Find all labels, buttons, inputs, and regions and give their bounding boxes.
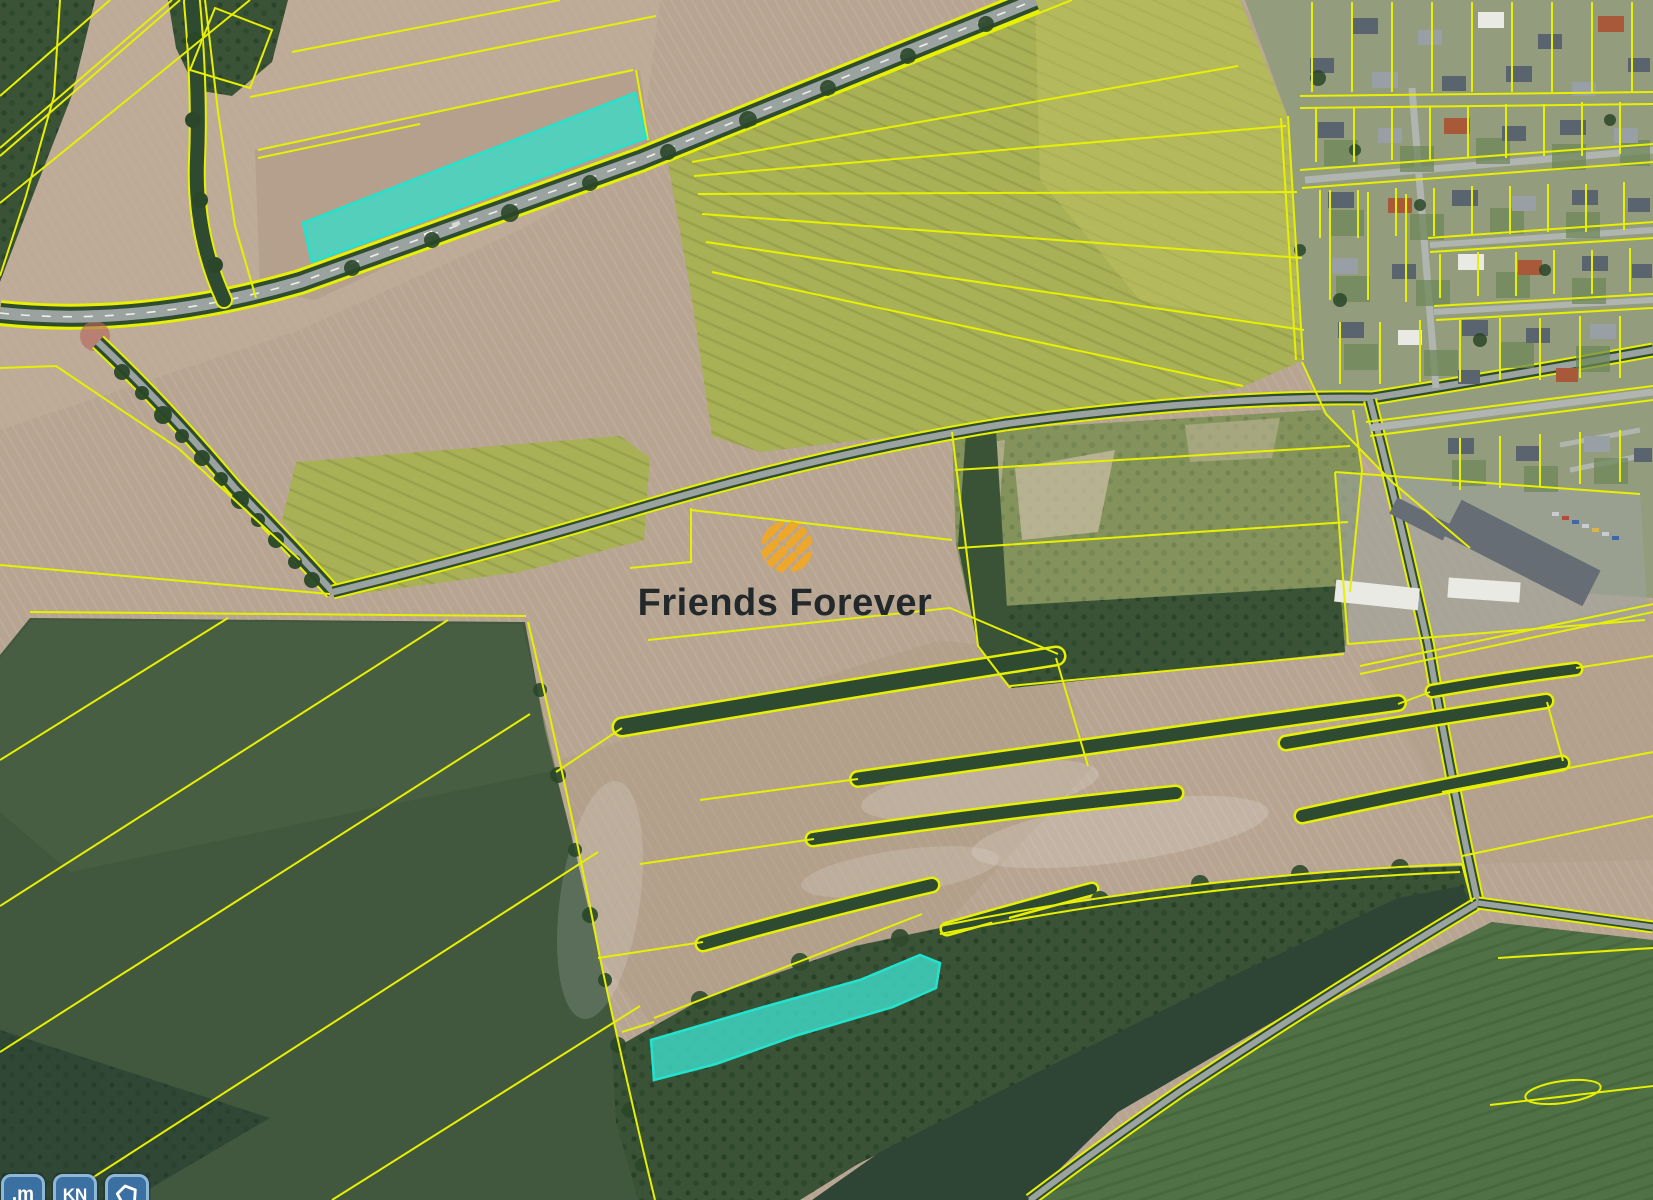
cadastre-kn-label: KN: [63, 1185, 88, 1200]
brand-wordmark: Friends Forever: [585, 582, 985, 625]
unit-meters-label: .m: [12, 1184, 34, 1200]
brand-logo-icon: [755, 515, 819, 579]
unit-meters-button[interactable]: .m: [1, 1174, 45, 1200]
pentagon-parcel-icon: [114, 1182, 140, 1200]
parcel-shape-button[interactable]: [105, 1174, 149, 1200]
map-viewport[interactable]: Friends Forever .m KN: [0, 0, 1653, 1200]
cadastre-kn-button[interactable]: KN: [53, 1174, 97, 1200]
